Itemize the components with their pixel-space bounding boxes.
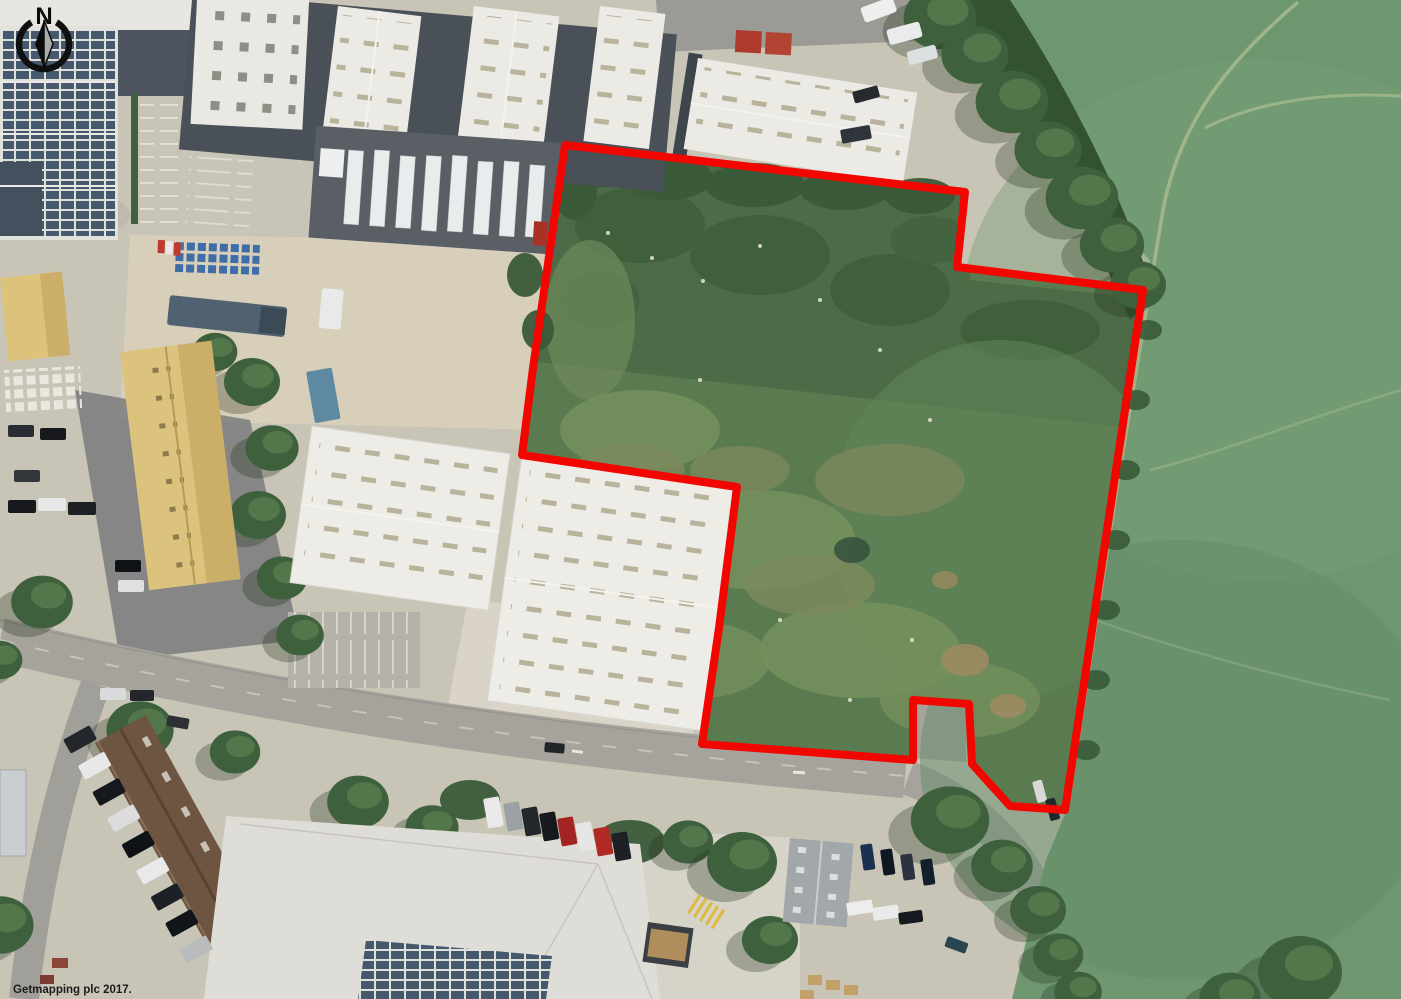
warehouse-mid-west (290, 426, 510, 610)
attribution-label: Getmapping plc 2017. (13, 984, 132, 996)
solar-roof-building (0, 26, 118, 240)
yellow-building-small (0, 272, 70, 362)
compass-north-label: N (35, 3, 52, 30)
grey-gabled-building (783, 838, 854, 927)
warehouse-3 (458, 6, 560, 149)
warehouse-1 (191, 0, 310, 130)
aerial-map: N Getmapping plc 2017. (0, 0, 1401, 999)
aerial-photo: N Getmapping plc 2017. (0, 0, 1401, 999)
trailer-park (308, 126, 563, 255)
grey-canopy (0, 770, 26, 856)
warehouse-mid-east (487, 455, 735, 731)
skip (642, 922, 693, 968)
